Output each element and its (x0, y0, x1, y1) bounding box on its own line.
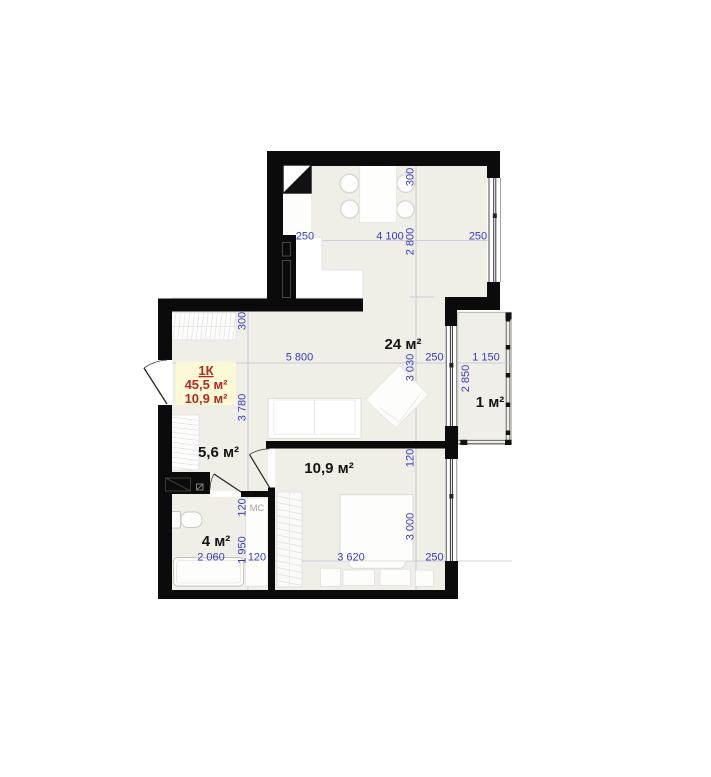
svg-text:120: 120 (405, 449, 417, 467)
svg-text:1 м²: 1 м² (476, 394, 505, 411)
svg-text:24 м²: 24 м² (385, 336, 422, 353)
svg-text:250: 250 (296, 231, 314, 243)
svg-text:45,5 м²: 45,5 м² (185, 377, 229, 392)
svg-text:10,9 м²: 10,9 м² (185, 391, 229, 406)
svg-text:2 060: 2 060 (197, 552, 225, 564)
svg-text:300: 300 (237, 312, 249, 330)
svg-text:5 800: 5 800 (286, 352, 314, 364)
svg-text:10,9 м²: 10,9 м² (304, 460, 353, 477)
svg-text:120: 120 (237, 498, 249, 516)
svg-text:250: 250 (425, 352, 443, 364)
svg-text:2 800: 2 800 (405, 228, 417, 256)
svg-text:1 150: 1 150 (472, 352, 500, 364)
svg-text:250: 250 (469, 231, 487, 243)
svg-text:1 950: 1 950 (237, 536, 249, 564)
svg-text:3 780: 3 780 (237, 394, 249, 422)
svg-text:МС: МС (250, 503, 265, 514)
svg-text:1К: 1К (198, 363, 213, 378)
svg-text:4 м²: 4 м² (202, 533, 231, 550)
svg-text:2 850: 2 850 (460, 365, 472, 393)
svg-text:120: 120 (248, 552, 266, 564)
svg-text:3 620: 3 620 (337, 552, 365, 564)
svg-text:4 100: 4 100 (376, 231, 404, 243)
svg-text:300: 300 (405, 168, 417, 186)
svg-text:3 030: 3 030 (405, 354, 417, 382)
svg-text:250: 250 (425, 552, 443, 564)
svg-text:5,6 м²: 5,6 м² (198, 444, 239, 461)
svg-text:3 000: 3 000 (405, 513, 417, 541)
